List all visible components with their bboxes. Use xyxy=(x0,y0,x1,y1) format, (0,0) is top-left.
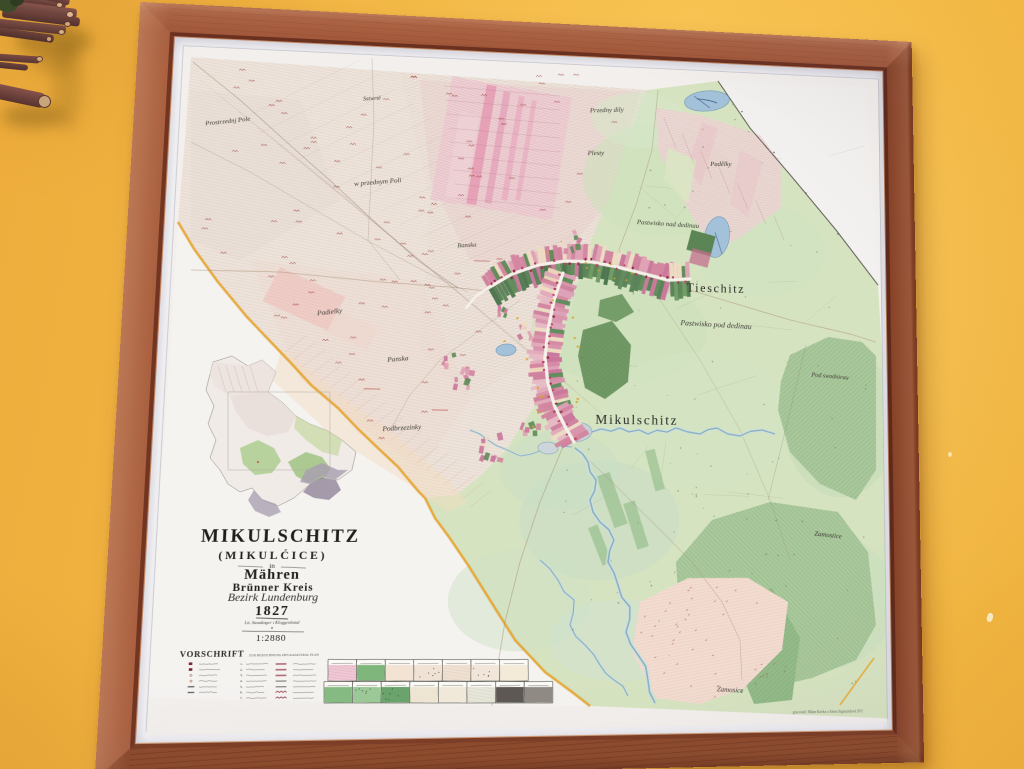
svg-text:Sstwrtě: Sstwrtě xyxy=(363,96,381,103)
svg-text:6.: 6. xyxy=(240,690,243,694)
svg-text:Banska: Banska xyxy=(457,242,477,250)
svg-text:ZUR BEZEICHNUNG DES KATASTRAL: ZUR BEZEICHNUNG DES KATASTRAL PLAN xyxy=(249,652,320,657)
svg-text:(MIKULĆICE): (MIKULĆICE) xyxy=(218,550,327,562)
svg-text:2.: 2. xyxy=(240,668,243,672)
svg-text:Lit. Staudinger i Kloggenband: Lit. Staudinger i Kloggenband xyxy=(243,620,300,626)
svg-text:4.: 4. xyxy=(240,679,243,683)
svg-text:VORSCHRIFT: VORSCHRIFT xyxy=(180,649,245,659)
svg-text:Tieschitz: Tieschitz xyxy=(686,281,745,296)
svg-text:Zamosice: Zamosice xyxy=(717,685,744,695)
svg-text:7.: 7. xyxy=(240,696,243,700)
svg-text:1.: 1. xyxy=(240,662,243,666)
svg-text:Padělky: Padělky xyxy=(709,160,732,167)
svg-text:1827: 1827 xyxy=(255,602,290,618)
svg-text:1:2880: 1:2880 xyxy=(256,632,287,643)
svg-text:Plesty: Plesty xyxy=(587,149,606,157)
svg-text:5.: 5. xyxy=(240,685,243,689)
svg-text:Mikulschitz: Mikulschitz xyxy=(595,412,678,428)
svg-text:Przedny dily: Przedny dily xyxy=(589,106,625,114)
svg-text:Mähren: Mähren xyxy=(244,567,301,583)
svg-text:3.: 3. xyxy=(240,673,243,677)
svg-text:MIKULSCHITZ: MIKULSCHITZ xyxy=(201,525,361,546)
